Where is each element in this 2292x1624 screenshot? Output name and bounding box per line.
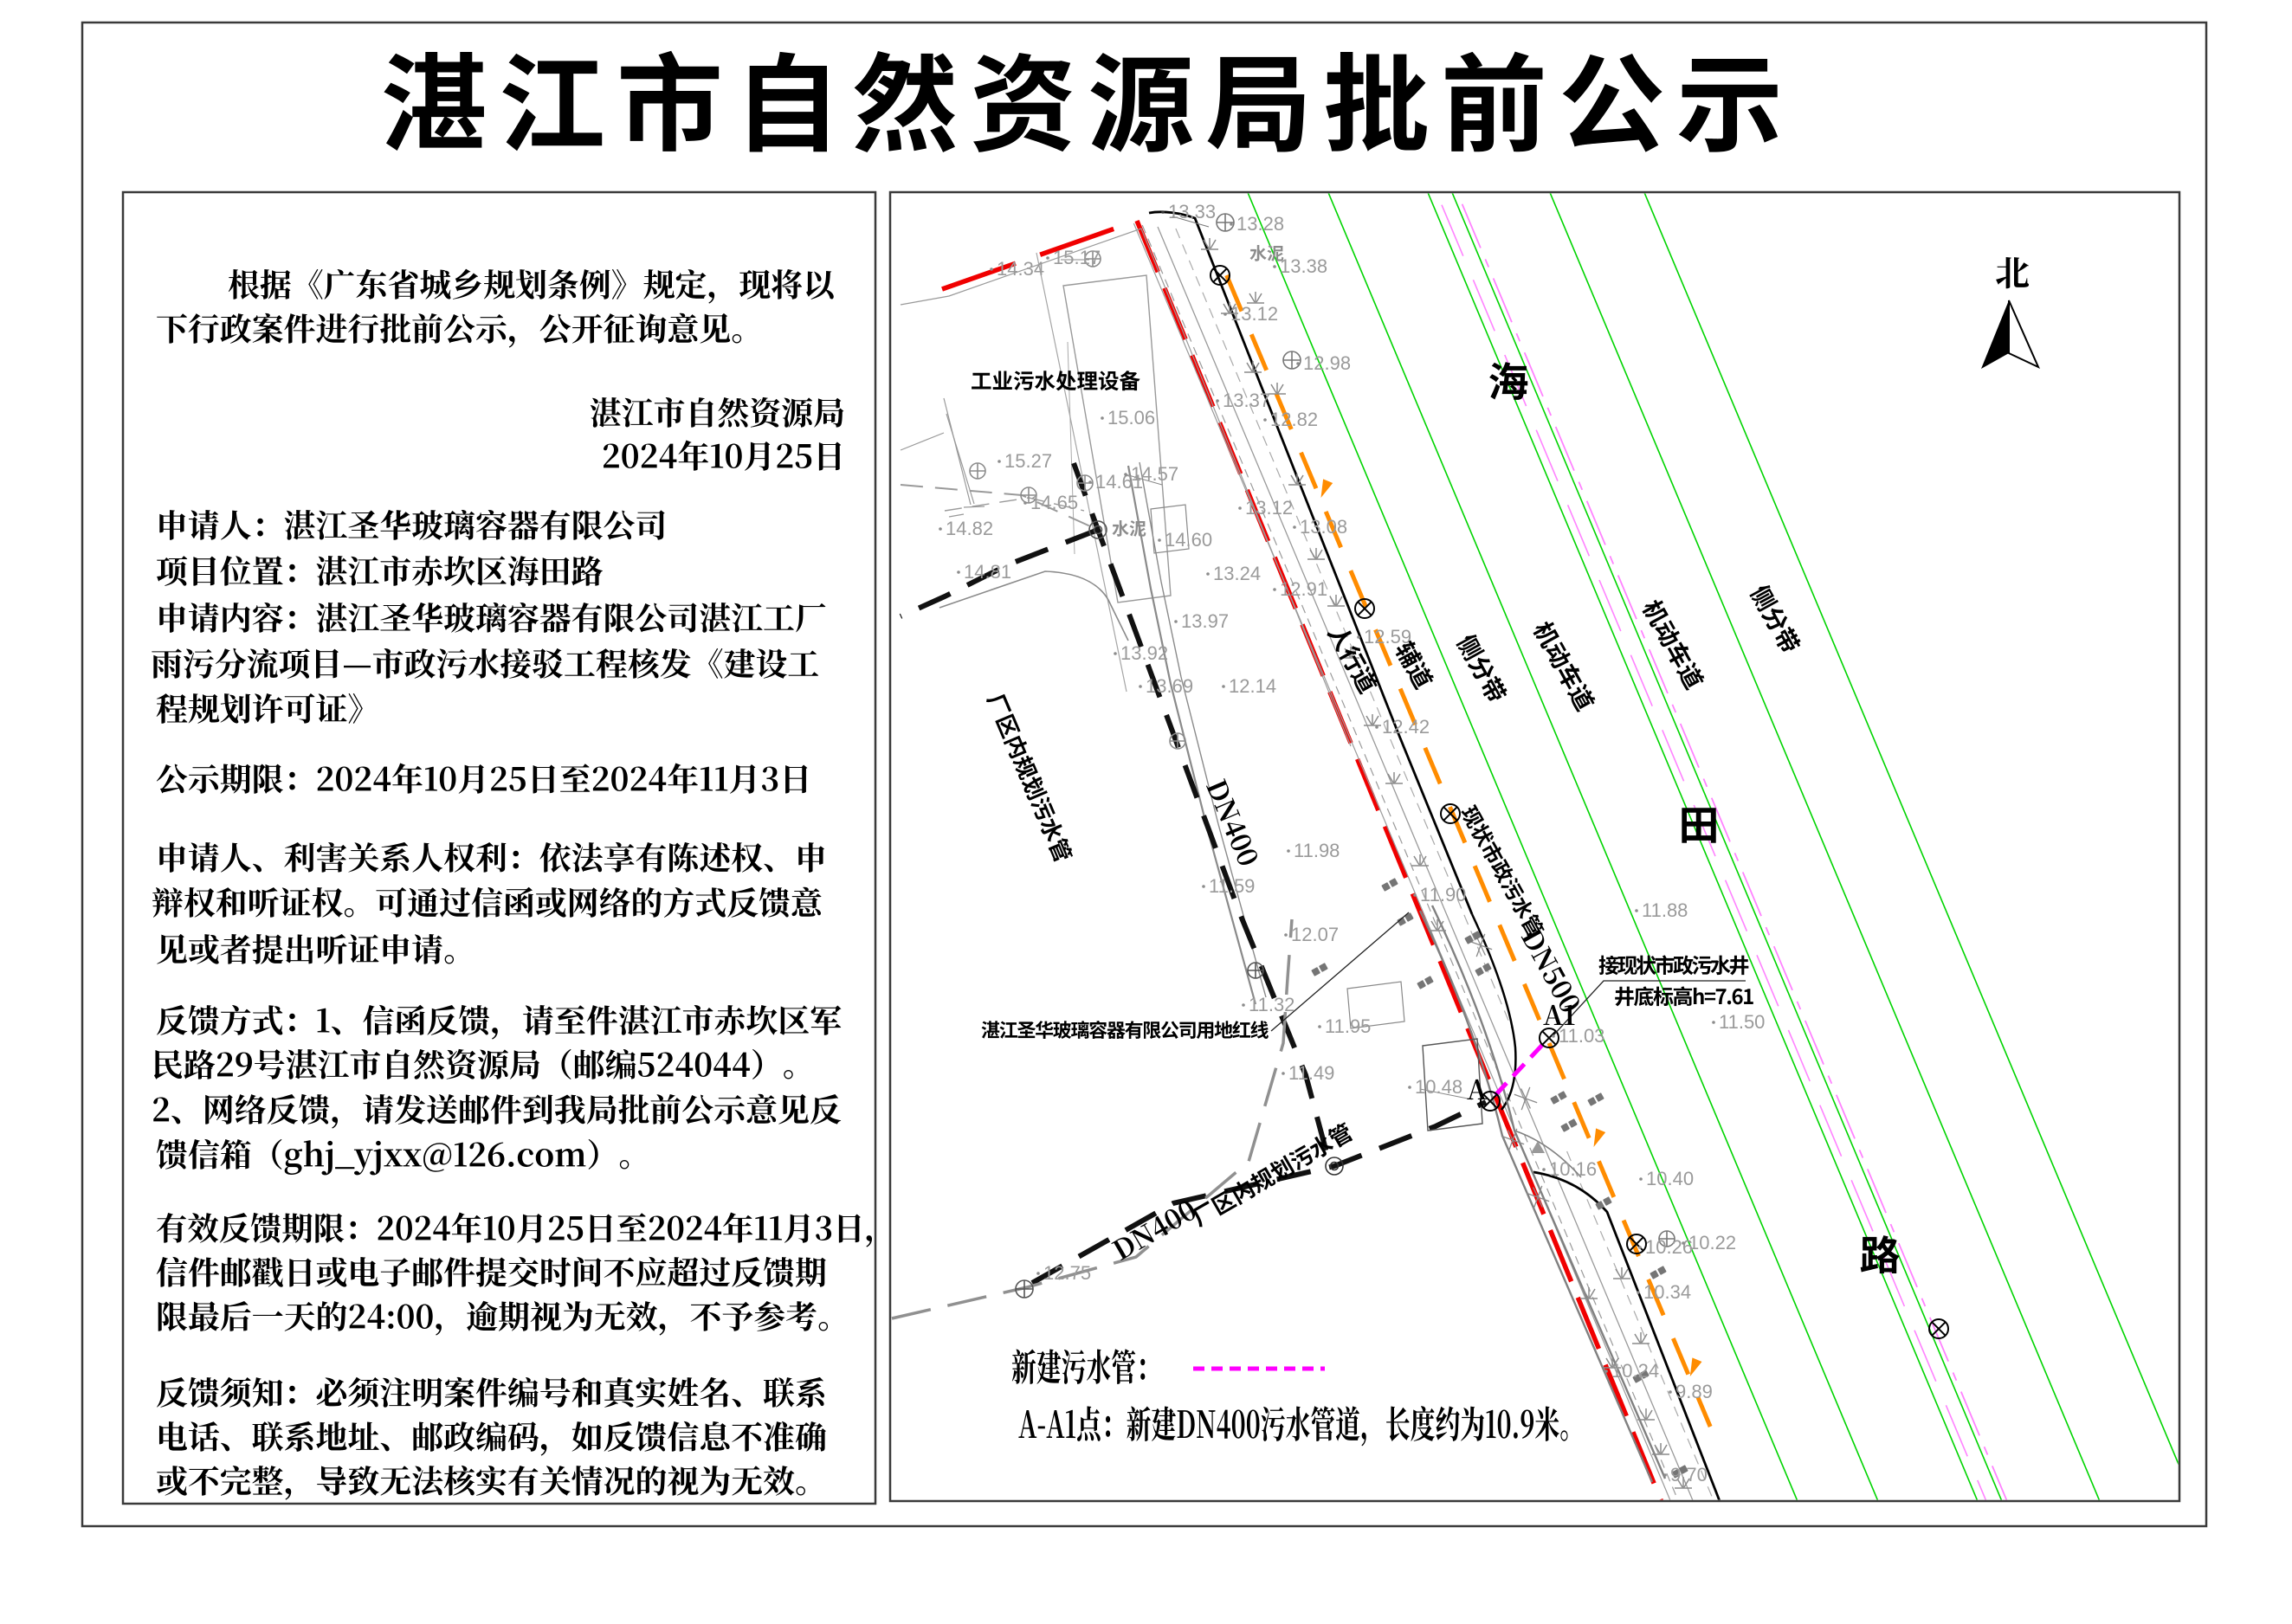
svg-text:12.14: 12.14: [1229, 675, 1276, 697]
svg-text:11.95: 11.95: [1325, 1015, 1371, 1037]
svg-text:13.12: 13.12: [1230, 303, 1278, 325]
svg-text:11.98: 11.98: [1294, 840, 1340, 861]
svg-text:15.17: 15.17: [1053, 247, 1101, 268]
svg-text:11.49: 11.49: [1288, 1062, 1334, 1084]
svg-text:13.38: 13.38: [1280, 255, 1327, 277]
svg-text:9.70: 9.70: [1670, 1464, 1708, 1485]
svg-text:13.37: 13.37: [1223, 390, 1270, 411]
svg-text:12.42: 12.42: [1382, 716, 1430, 738]
svg-text:13.33: 13.33: [1168, 201, 1216, 222]
svg-text:13.24: 13.24: [1213, 563, 1261, 584]
svg-text:12.75: 12.75: [1043, 1262, 1091, 1284]
svg-text:13.28: 13.28: [1236, 213, 1284, 235]
svg-text:12.82: 12.82: [1270, 409, 1318, 430]
svg-text:13.97: 13.97: [1181, 610, 1229, 632]
svg-text:10.26: 10.26: [1645, 1236, 1693, 1258]
svg-text:14.60: 14.60: [1165, 529, 1212, 551]
svg-text:13.08: 13.08: [1300, 516, 1347, 538]
svg-text:14.81: 14.81: [964, 561, 1011, 583]
svg-text:14.65: 14.65: [1030, 492, 1078, 513]
svg-text:10.16: 10.16: [1549, 1158, 1597, 1180]
svg-text:13.12: 13.12: [1245, 497, 1293, 519]
svg-text:11.03: 11.03: [1559, 1025, 1604, 1047]
svg-text:15.06: 15.06: [1107, 407, 1155, 429]
svg-text:11.59: 11.59: [1209, 875, 1255, 897]
svg-text:10.22: 10.22: [1688, 1232, 1736, 1253]
svg-text:11.90: 11.90: [1420, 884, 1466, 905]
svg-text:9.89: 9.89: [1675, 1381, 1713, 1402]
svg-text:12.98: 12.98: [1303, 352, 1351, 374]
svg-text:10.40: 10.40: [1646, 1168, 1694, 1189]
svg-text:11.32: 11.32: [1249, 994, 1294, 1015]
svg-text:13.69: 13.69: [1146, 675, 1193, 697]
svg-text:14.34: 14.34: [997, 258, 1044, 280]
svg-text:11.50: 11.50: [1719, 1011, 1765, 1033]
svg-text:14.57: 14.57: [1131, 463, 1178, 485]
svg-text:10.34: 10.34: [1643, 1281, 1691, 1303]
svg-text:10.24: 10.24: [1611, 1360, 1659, 1382]
svg-text:12.91: 12.91: [1280, 578, 1327, 600]
svg-text:12.59: 12.59: [1364, 626, 1411, 648]
svg-text:10.48: 10.48: [1415, 1076, 1462, 1098]
svg-text:14.82: 14.82: [946, 518, 993, 539]
svg-text:15.27: 15.27: [1004, 450, 1052, 472]
svg-text:13.92: 13.92: [1120, 642, 1168, 664]
svg-text:12.07: 12.07: [1291, 924, 1339, 945]
svg-text:11.88: 11.88: [1642, 899, 1688, 921]
